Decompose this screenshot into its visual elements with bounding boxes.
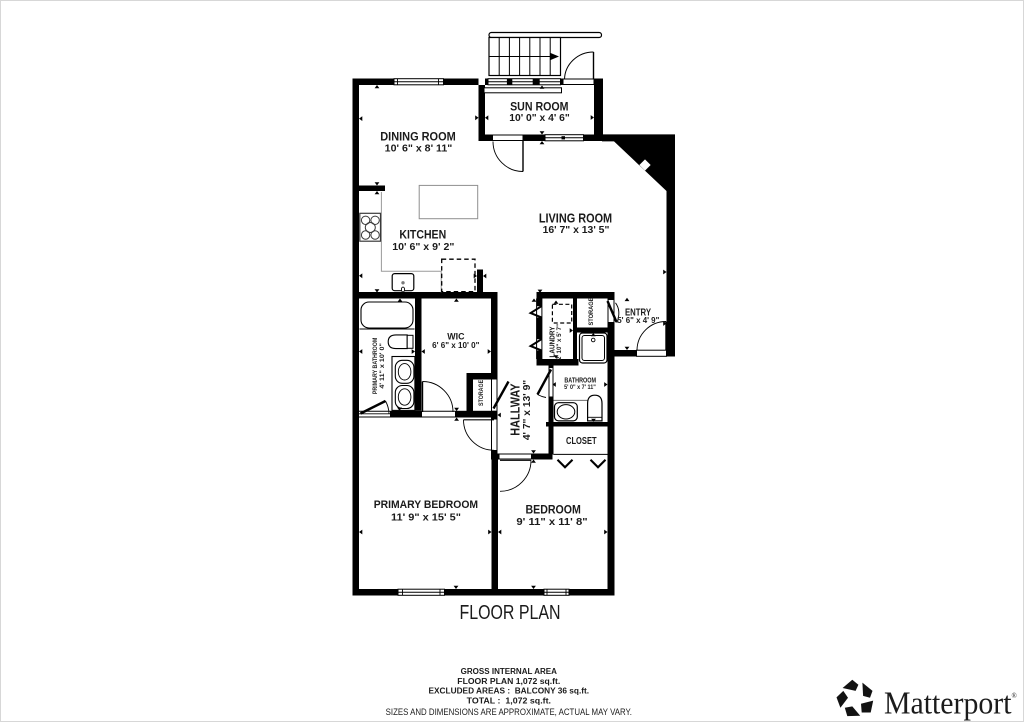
svg-text:10' 6" x 9' 2": 10' 6" x 9' 2" — [392, 242, 454, 253]
svg-text:HALLWAY: HALLWAY — [508, 383, 523, 435]
svg-text:BEDROOM: BEDROOM — [526, 502, 581, 516]
svg-text:®: ® — [1012, 692, 1018, 700]
svg-text:LIVING ROOM: LIVING ROOM — [539, 210, 612, 225]
svg-text:STORAGE: STORAGE — [478, 379, 485, 406]
svg-text:16' 7" x 13' 5": 16' 7" x 13' 5" — [543, 225, 610, 236]
svg-text:6' 6" x 10' 0": 6' 6" x 10' 0" — [432, 340, 479, 350]
svg-text:GROSS INTERNAL AREA: GROSS INTERNAL AREA — [461, 666, 557, 676]
svg-text:PRIMARY BEDROOM: PRIMARY BEDROOM — [374, 499, 478, 511]
svg-text:Matterport: Matterport — [884, 685, 1012, 721]
svg-text:FLOOR PLAN 1,072 sq.ft.: FLOOR PLAN 1,072 sq.ft. — [457, 676, 560, 686]
svg-text:10' 0" x 4' 6": 10' 0" x 4' 6" — [509, 113, 570, 124]
svg-text:9' 11" x 11' 8": 9' 11" x 11' 8" — [516, 517, 587, 528]
svg-text:4' 7" x 13' 9": 4' 7" x 13' 9" — [522, 380, 533, 440]
svg-text:STORAGE: STORAGE — [588, 297, 595, 326]
svg-text:PRIMARY BATHROOM: PRIMARY BATHROOM — [372, 338, 379, 395]
svg-text:EXCLUDED AREAS : BALCONY 36 s: EXCLUDED AREAS : BALCONY 36 sq.ft. — [429, 686, 590, 696]
svg-text:FLOOR PLAN: FLOOR PLAN — [460, 602, 561, 624]
svg-text:KITCHEN: KITCHEN — [399, 228, 446, 242]
svg-text:5' 0" x 7' 11": 5' 0" x 7' 11" — [564, 384, 596, 391]
svg-text:11' 9" x 15' 5": 11' 9" x 15' 5" — [391, 512, 461, 523]
svg-text:TOTAL : 1,072 sq.ft.: TOTAL : 1,072 sq.ft. — [467, 695, 551, 705]
svg-text:DINING ROOM: DINING ROOM — [380, 130, 456, 144]
svg-text:10' 6" x 8' 11": 10' 6" x 8' 11" — [385, 144, 453, 155]
svg-text:CLOSET: CLOSET — [566, 436, 597, 447]
svg-text:2' 10" x 5' 7": 2' 10" x 5' 7" — [556, 324, 563, 360]
svg-text:SUN ROOM: SUN ROOM — [510, 99, 568, 113]
svg-text:SIZES AND DIMENSIONS ARE APPRO: SIZES AND DIMENSIONS ARE APPROXIMATE, AC… — [386, 707, 632, 717]
svg-text:5' 6" x 4' 9": 5' 6" x 4' 9" — [617, 316, 659, 325]
svg-text:4' 11" x 10' 0": 4' 11" x 10' 0" — [379, 343, 386, 389]
